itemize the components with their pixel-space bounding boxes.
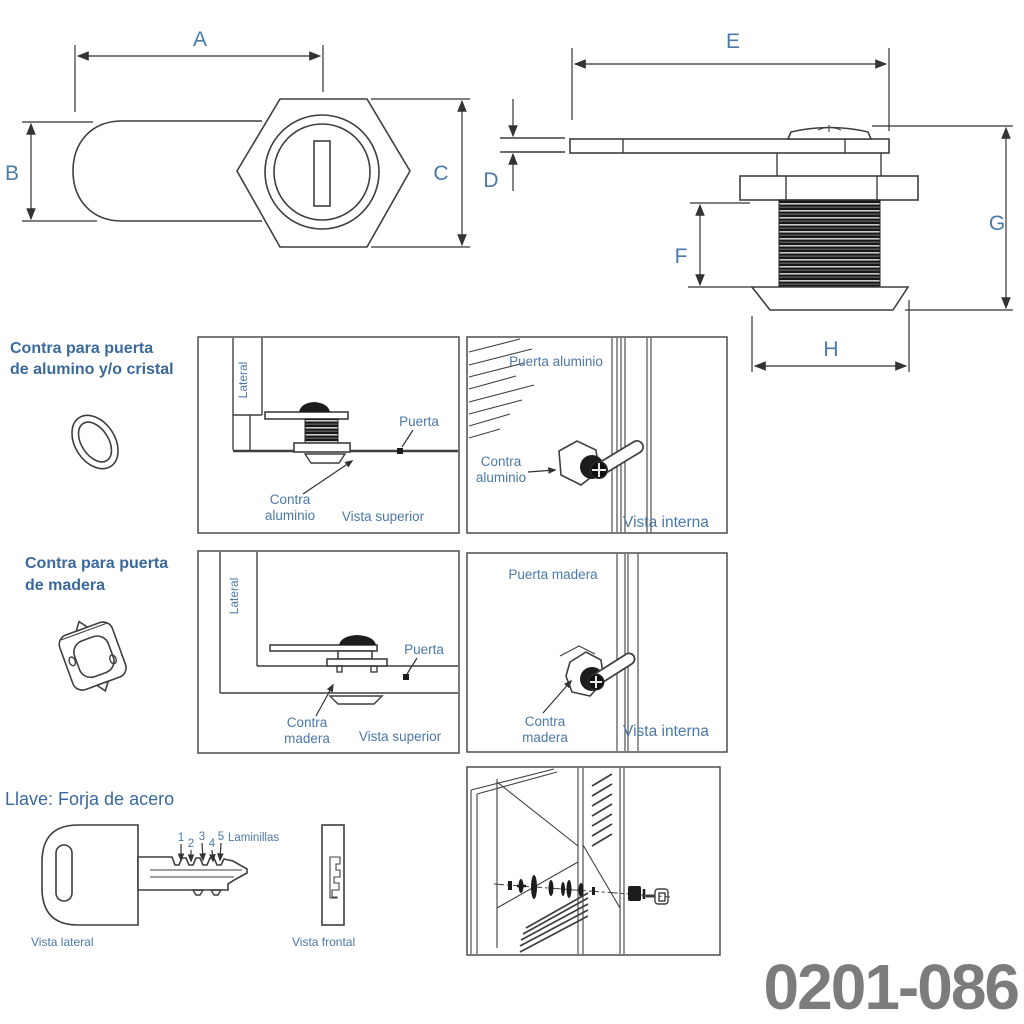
datasheet-page: A B C E D (0, 0, 1024, 1024)
contra-label-2: aluminio (476, 470, 526, 485)
puerta-label: Puerta (404, 642, 444, 657)
section-aluminio: Contra para puerta de alumino y/o crista… (10, 337, 727, 533)
threaded-barrel (779, 200, 880, 287)
leader-dot (403, 674, 409, 680)
contra-label-1: Contra (481, 454, 522, 469)
door-label: Puerta madera (508, 567, 598, 582)
install-box-aluminio-internal: Puerta aluminio Contra aluminio Vista in… (467, 337, 727, 533)
side-view-caption: Vista lateral (31, 935, 93, 949)
contra-label-1: Contra (525, 714, 566, 729)
body-small (338, 651, 372, 659)
laminilla-number: 3 (199, 831, 205, 843)
contra-label-1: Contra (287, 715, 328, 730)
dim-label-a: A (193, 28, 207, 51)
view-caption: Vista superior (342, 509, 425, 524)
cam-small (270, 645, 377, 651)
key-head-slot (56, 845, 72, 901)
contra-label-2: madera (522, 730, 568, 745)
view-caption: Vista interna (623, 514, 709, 531)
lateral-label: Lateral (236, 362, 250, 399)
key-front-view (322, 825, 344, 925)
puerta-label: Puerta (399, 414, 439, 429)
key-blade (138, 857, 247, 890)
technical-drawing: A B C E D (0, 0, 1024, 1024)
dim-label-e: E (726, 30, 740, 53)
view-caption: Vista interna (623, 723, 709, 740)
lock-face-trapezoid (752, 287, 908, 310)
install-box-aluminio-top: Lateral Puerta Contra aluminio Vista sup… (198, 337, 459, 533)
washer-drawing (62, 407, 127, 477)
bracket-drawing (54, 612, 132, 701)
contra-label-1: Contra (270, 492, 311, 507)
lock-side-front-view: A B C (5, 28, 470, 247)
cabinet-exploded-view (467, 767, 720, 955)
lock-cam-side-view: E D F G H (483, 30, 1013, 372)
dim-label-d: D (483, 169, 498, 192)
section-title-line2: de madera (25, 577, 105, 594)
laminilla-number: 1 (178, 832, 184, 844)
dim-label-h: H (823, 338, 838, 361)
dim-label-b: B (5, 162, 19, 185)
section-title-line1: Contra para puerta (10, 340, 153, 357)
cam-small (265, 412, 348, 419)
section-title-line1: Contra para puerta (25, 555, 168, 572)
thread-small (305, 419, 338, 443)
view-caption: Vista superior (359, 729, 442, 744)
contra-label-2: madera (284, 731, 330, 746)
dim-label-f: F (675, 245, 688, 268)
key-section-title: Llave: Forja de acero (5, 789, 174, 809)
laminillas-callouts: 1 2 3 4 5 Laminillas (178, 831, 280, 861)
nut-small (294, 443, 350, 452)
install-box-madera-internal: Puerta madera Contra madera Vista intern… (467, 553, 727, 752)
laminilla-number: 4 (209, 838, 216, 850)
door-label: Puerta aluminio (509, 354, 603, 369)
laminillas-label: Laminillas (228, 832, 279, 844)
key-side-view (42, 825, 247, 925)
section-llave: Llave: Forja de acero 1 2 3 4 5 Laminill… (5, 767, 720, 955)
front-view-caption: Vista frontal (292, 935, 355, 949)
lateral-label: Lateral (227, 578, 241, 615)
dim-label-g: G (989, 212, 1005, 235)
lock-body-capsule (73, 121, 262, 221)
dim-label-c: C (433, 162, 448, 185)
hex-nut-side (740, 176, 918, 200)
contra-label-2: aluminio (265, 508, 315, 523)
install-box-madera-top: Lateral Puerta Contra madera Vista super… (198, 551, 459, 753)
cam-lever (570, 139, 889, 153)
leader-dot (397, 448, 403, 454)
keyway-slot (314, 141, 330, 206)
section-title-line2: de alumino y/o cristal (10, 361, 174, 378)
section-madera: Contra para puerta de madera Lateral (25, 551, 727, 753)
lock-cylinder-part (628, 886, 641, 901)
part-number: 0201-086 (764, 951, 1019, 1023)
laminilla-number: 2 (188, 838, 194, 850)
plate-small (327, 659, 387, 666)
laminilla-number: 5 (218, 831, 224, 843)
